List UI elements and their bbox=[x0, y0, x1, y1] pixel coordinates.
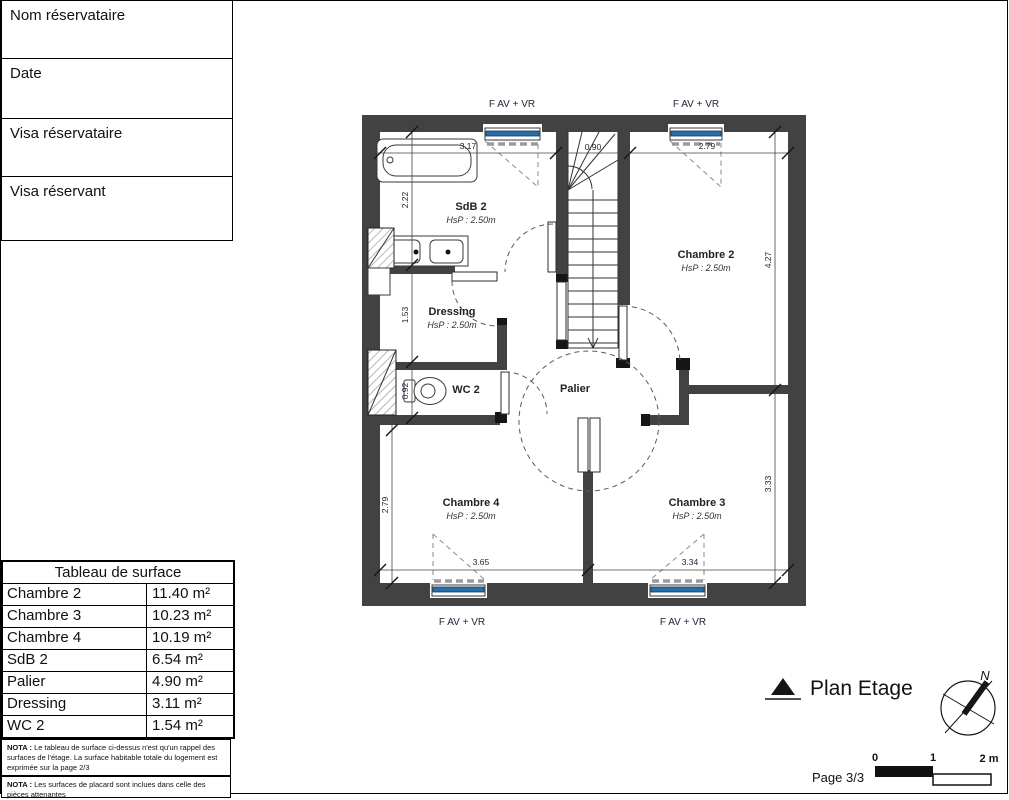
window-top-right bbox=[670, 128, 722, 187]
dim-label: 3.33 bbox=[763, 475, 773, 492]
room-hsp-chambre3: HsP : 2.50m bbox=[672, 511, 722, 521]
dim-label: 2.79 bbox=[380, 496, 390, 513]
dim-label: 2.22 bbox=[400, 191, 410, 208]
scale-label-1: 1 bbox=[930, 752, 936, 764]
room-label-sdb2: SdB 2 bbox=[455, 201, 486, 213]
scale-bar bbox=[875, 766, 991, 785]
room-label-palier: Palier bbox=[560, 383, 591, 395]
plan-title: Plan Etage bbox=[810, 677, 913, 700]
room-label-dressing: Dressing bbox=[428, 306, 475, 318]
room-hsp-sdb2: HsP : 2.50m bbox=[446, 215, 496, 225]
page-number: Page 3/3 bbox=[812, 770, 864, 785]
floor-plan: 3.17 0.90 2.79 2.22 1.53 0.92 2.79 4.27 … bbox=[0, 0, 1009, 800]
plan-title-marker bbox=[765, 678, 801, 699]
room-hsp-chambre2: HsP : 2.50m bbox=[681, 263, 731, 273]
room-label-chambre4: Chambre 4 bbox=[443, 497, 501, 509]
room-hsp-dressing: HsP : 2.50m bbox=[427, 320, 477, 330]
window-label: F AV + VR bbox=[439, 617, 485, 628]
dim-label: 1.53 bbox=[400, 306, 410, 323]
window-top-left bbox=[485, 128, 540, 187]
triangle-marker-icon bbox=[771, 678, 795, 695]
window-label: F AV + VR bbox=[489, 99, 535, 110]
compass-icon bbox=[941, 681, 995, 735]
scale-label-0: 0 bbox=[872, 752, 878, 764]
scale-label-2m: 2 m bbox=[980, 753, 999, 765]
dim-label: 0.92 bbox=[400, 382, 410, 399]
dim-label: 4.27 bbox=[763, 251, 773, 268]
drawing-page: Nom réservataire Date Visa réservataire … bbox=[0, 0, 1009, 800]
toilet-icon bbox=[404, 378, 446, 405]
window-label: F AV + VR bbox=[660, 617, 706, 628]
room-label-wc2: WC 2 bbox=[452, 384, 480, 396]
room-hsp-chambre4: HsP : 2.50m bbox=[446, 511, 496, 521]
north-label: N bbox=[980, 668, 990, 683]
dim-label: 0.90 bbox=[585, 142, 602, 152]
room-label-chambre3: Chambre 3 bbox=[669, 497, 726, 509]
walls bbox=[362, 115, 806, 606]
dim-label: 3.34 bbox=[682, 557, 699, 567]
dim-label: 2.79 bbox=[699, 141, 716, 151]
dim-label: 3.17 bbox=[460, 141, 477, 151]
room-label-chambre2: Chambre 2 bbox=[678, 249, 735, 261]
dim-label: 3.65 bbox=[473, 557, 490, 567]
window-label: F AV + VR bbox=[673, 99, 719, 110]
staircase bbox=[568, 132, 618, 348]
